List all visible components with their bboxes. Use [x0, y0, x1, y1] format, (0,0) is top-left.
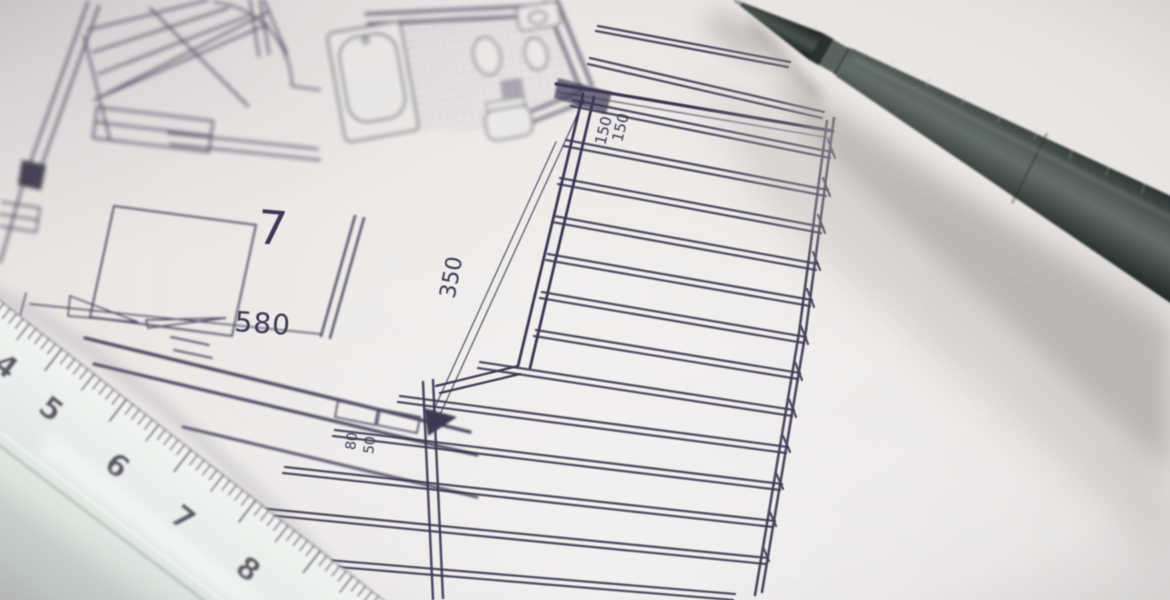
vignette-overlay: [0, 0, 1170, 600]
photo-architect-floorplan: 7 580 350 150 150 80 50 4 5 6 7 8 9: [0, 0, 1170, 600]
photo-canvas: 7 580 350 150 150 80 50 4 5 6 7 8 9: [0, 0, 1170, 600]
